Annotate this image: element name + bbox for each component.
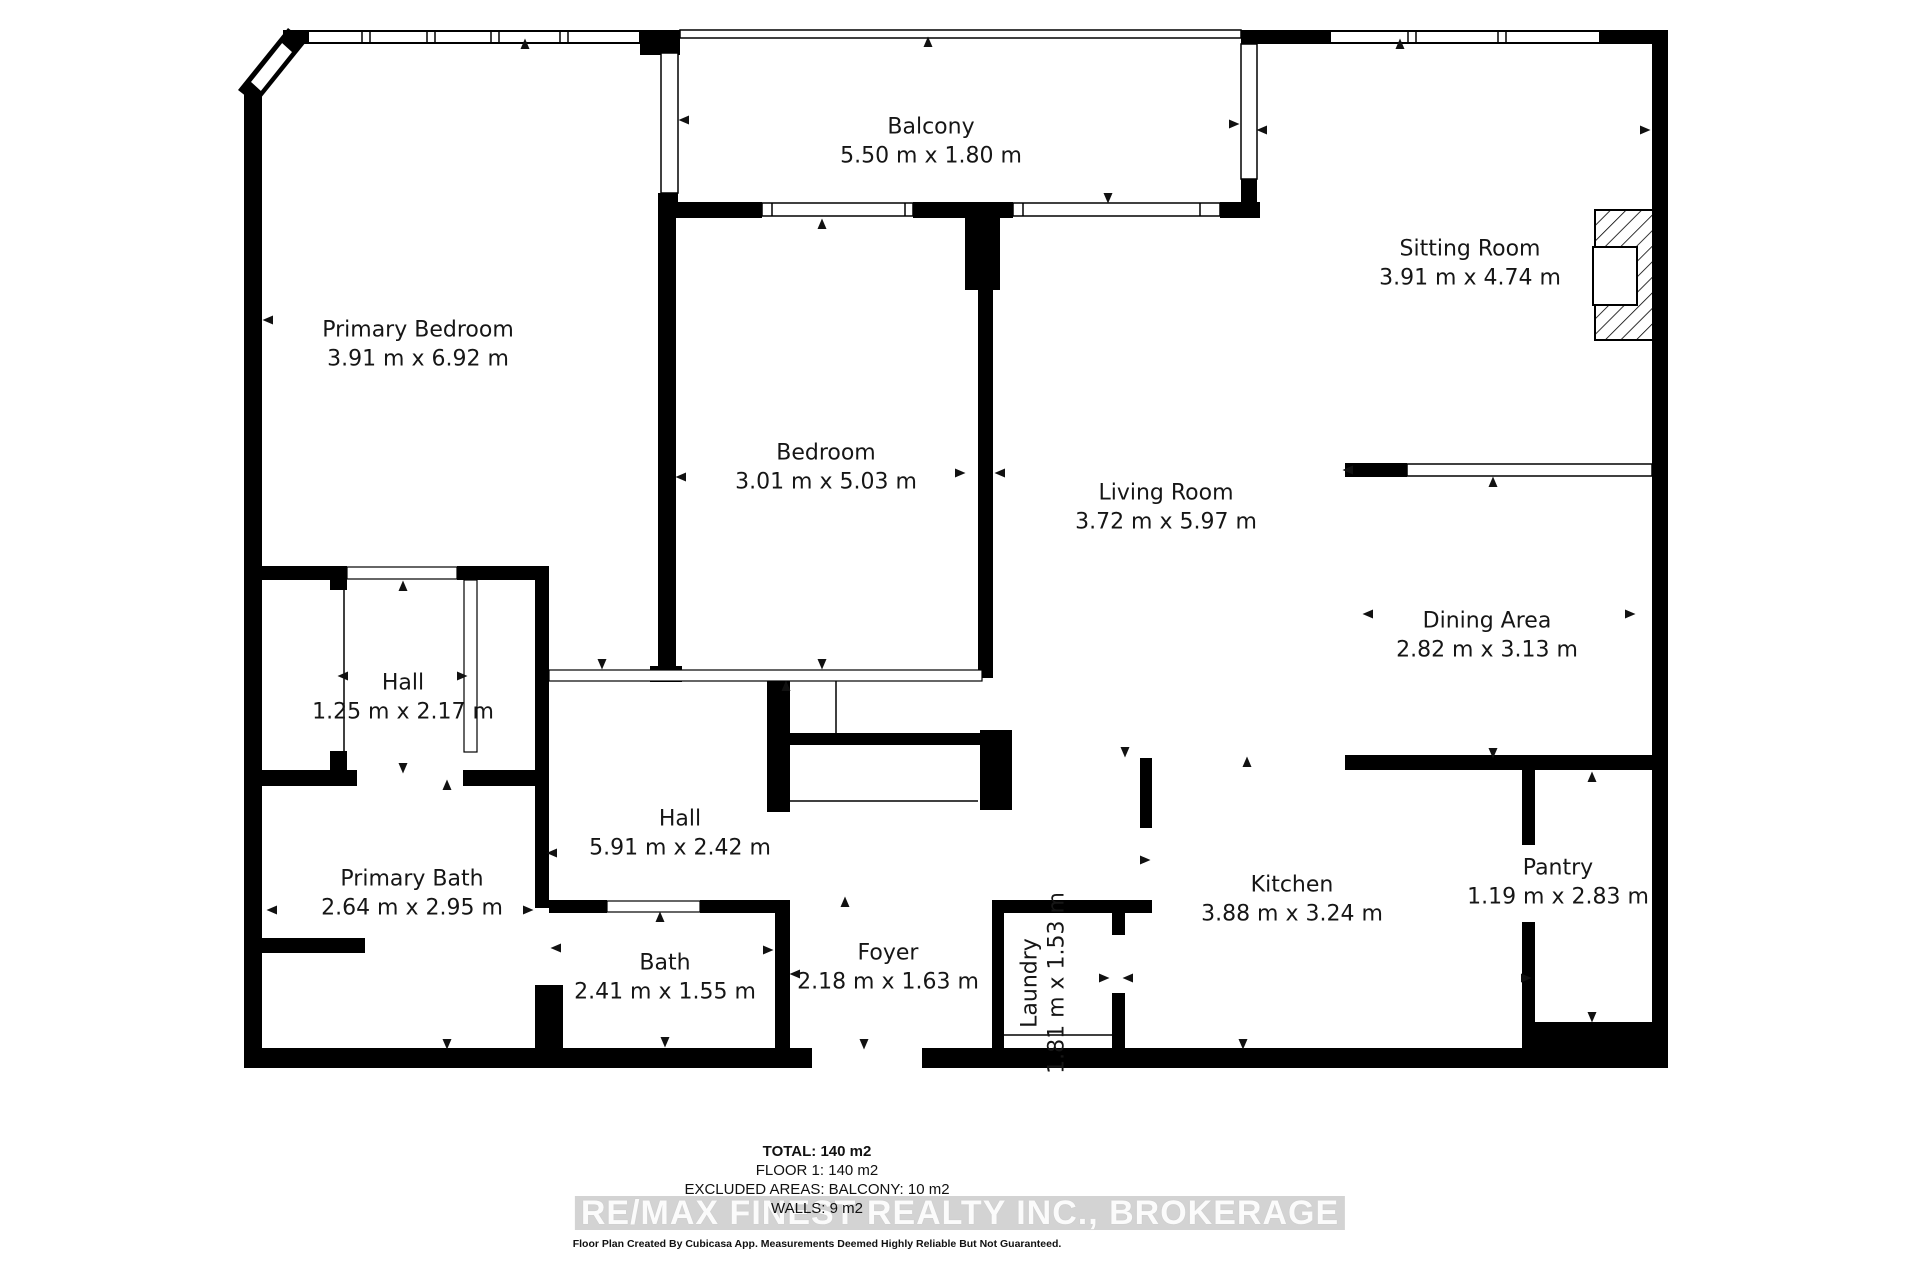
arrow-left-icon <box>676 473 687 482</box>
arrow-down-icon <box>1239 1039 1248 1050</box>
fireplace <box>1593 210 1655 340</box>
room-label-living-room: Living Room <box>1098 481 1233 506</box>
room-dims-hall-small: 1.25 m x 2.17 m <box>312 700 494 725</box>
fireplace-firebox <box>1593 247 1637 305</box>
wall-segment <box>1522 922 1535 1022</box>
arrow-up-icon <box>1243 757 1252 768</box>
wall-segment <box>1522 1022 1668 1068</box>
wall-segment <box>700 900 790 913</box>
arrow-right-icon <box>1229 120 1240 129</box>
wall-segment <box>330 751 347 770</box>
wall-segment <box>1345 755 1652 770</box>
wall-segment <box>549 900 607 913</box>
wall-segment <box>244 1048 812 1068</box>
arrow-up-icon <box>841 897 850 908</box>
room-dims-foyer: 2.18 m x 1.63 m <box>797 970 979 995</box>
arrow-down-icon <box>1104 193 1113 204</box>
wall-segment <box>535 566 549 908</box>
wall-segment <box>1522 770 1535 845</box>
footer-excluded: EXCLUDED AREAS: BALCONY: 10 m2 <box>684 1181 949 1198</box>
arrow-down-icon <box>1121 747 1130 758</box>
arrow-right-icon <box>1640 126 1651 135</box>
wall-segment <box>1220 202 1260 218</box>
wall-segment <box>244 84 262 1068</box>
arrow-right-icon <box>955 469 966 478</box>
room-dims-balcony: 5.50 m x 1.80 m <box>840 144 1022 169</box>
arrow-left-icon <box>679 116 690 125</box>
room-label-primary-bedroom: Primary Bedroom <box>322 318 514 343</box>
wall-segment <box>978 290 993 678</box>
wall-segment <box>1241 179 1257 204</box>
door-opening <box>607 901 700 912</box>
wall-segment <box>535 985 563 1048</box>
railing-divider <box>1407 464 1652 476</box>
wall-segment <box>992 900 1152 913</box>
wall-segment <box>775 913 790 1048</box>
room-label-sitting-room: Sitting Room <box>1400 237 1541 262</box>
arrow-right-icon <box>1099 974 1110 983</box>
room-dims-laundry: 1.81 m x 1.53 m <box>1045 892 1070 1074</box>
arrow-up-icon <box>818 219 827 230</box>
wall-segment <box>463 770 549 786</box>
arrow-right-icon <box>1625 610 1636 619</box>
room-dims-bedroom: 3.01 m x 5.03 m <box>735 470 917 495</box>
opening-threshold <box>549 670 982 681</box>
balcony-rail <box>680 30 1241 38</box>
footer-walls: WALLS: 9 m2 <box>771 1200 863 1217</box>
wall-segment <box>244 770 357 786</box>
wall-segment <box>767 672 790 812</box>
arrow-down-icon <box>818 659 827 670</box>
floor-plan-page: Balcony 5.50 m x 1.80 m Primary Bedroom … <box>0 0 1920 1280</box>
room-label-foyer: Foyer <box>858 941 920 966</box>
footer-total: TOTAL: 140 m2 <box>763 1143 872 1160</box>
wall-segment <box>262 566 347 580</box>
arrow-left-icon <box>1257 126 1268 135</box>
window <box>762 203 913 216</box>
room-label-pantry: Pantry <box>1523 856 1593 881</box>
arrow-up-icon <box>1489 477 1498 488</box>
arrow-right-icon <box>1140 856 1151 865</box>
arrow-left-icon <box>1363 610 1374 619</box>
arrow-down-icon <box>443 1039 452 1050</box>
wall-segment <box>676 202 762 218</box>
room-label-hall-large: Hall <box>659 807 701 832</box>
wall-segment <box>1112 993 1125 1048</box>
closet-door <box>464 580 477 752</box>
wall-segment <box>1241 30 1331 44</box>
footer-disclaimer: Floor Plan Created By Cubicasa App. Meas… <box>573 1238 1062 1250</box>
room-dims-sitting-room: 3.91 m x 4.74 m <box>1379 266 1561 291</box>
arrow-up-icon <box>1588 772 1597 783</box>
window <box>661 53 678 193</box>
arrow-left-icon <box>338 672 349 681</box>
arrow-left-icon <box>995 469 1006 478</box>
wall-segment <box>658 218 676 668</box>
room-label-dining-area: Dining Area <box>1423 609 1552 634</box>
arrow-left-icon <box>263 316 274 325</box>
wall-segment <box>658 193 678 218</box>
wall-segment <box>1112 913 1125 935</box>
arrow-left-icon <box>1123 974 1134 983</box>
wall-segment <box>1600 30 1660 44</box>
wall-segment <box>992 913 1004 1048</box>
wall-segment <box>262 938 365 953</box>
arrow-up-icon <box>399 581 408 592</box>
arrow-right-icon <box>763 946 774 955</box>
room-dims-pantry: 1.19 m x 2.83 m <box>1467 885 1649 910</box>
window <box>308 31 640 43</box>
room-dims-kitchen: 3.88 m x 3.24 m <box>1201 902 1383 927</box>
brokerage-watermark: RE/MAX FINEST REALTY INC., BROKERAGE <box>575 1196 1345 1230</box>
floor-plan-svg: Balcony 5.50 m x 1.80 m Primary Bedroom … <box>0 0 1920 1280</box>
room-dims-dining-area: 2.82 m x 3.13 m <box>1396 638 1578 663</box>
arrow-down-icon <box>860 1039 869 1050</box>
room-label-kitchen: Kitchen <box>1251 873 1334 898</box>
arrow-down-icon <box>661 1037 670 1048</box>
room-label-bedroom: Bedroom <box>776 441 876 466</box>
arrow-up-icon <box>656 912 665 923</box>
wall-segment <box>1652 30 1668 1068</box>
room-dims-living-room: 3.72 m x 5.97 m <box>1075 510 1257 535</box>
room-dims-bath: 2.41 m x 1.55 m <box>574 980 756 1005</box>
arrow-down-icon <box>598 659 607 670</box>
room-dims-hall-large: 5.91 m x 2.42 m <box>589 836 771 861</box>
room-label-bath: Bath <box>639 951 690 976</box>
wall-segment <box>980 730 1012 810</box>
wall-segment <box>1345 463 1407 477</box>
wall-segment <box>640 30 680 55</box>
footer-floor: FLOOR 1: 140 m2 <box>756 1162 879 1179</box>
arrow-left-icon <box>551 944 562 953</box>
arrow-down-icon <box>1588 1012 1597 1023</box>
room-dims-primary-bedroom: 3.91 m x 6.92 m <box>327 347 509 372</box>
arrow-up-icon <box>443 780 452 791</box>
window <box>1013 203 1220 216</box>
room-label-hall-small: Hall <box>382 671 424 696</box>
wall-segment <box>790 733 984 745</box>
room-dims-primary-bath: 2.64 m x 2.95 m <box>321 896 503 921</box>
window <box>1241 44 1257 179</box>
room-label-laundry: Laundry <box>1018 938 1043 1028</box>
room-label-balcony: Balcony <box>887 115 974 140</box>
arrow-left-icon <box>267 906 278 915</box>
arrow-right-icon <box>523 906 534 915</box>
window <box>1330 31 1600 43</box>
closet-door <box>347 567 457 579</box>
room-label-primary-bath: Primary Bath <box>340 867 483 892</box>
wall-segment <box>965 202 1000 290</box>
wall-segment <box>1140 758 1152 828</box>
arrow-down-icon <box>399 763 408 774</box>
